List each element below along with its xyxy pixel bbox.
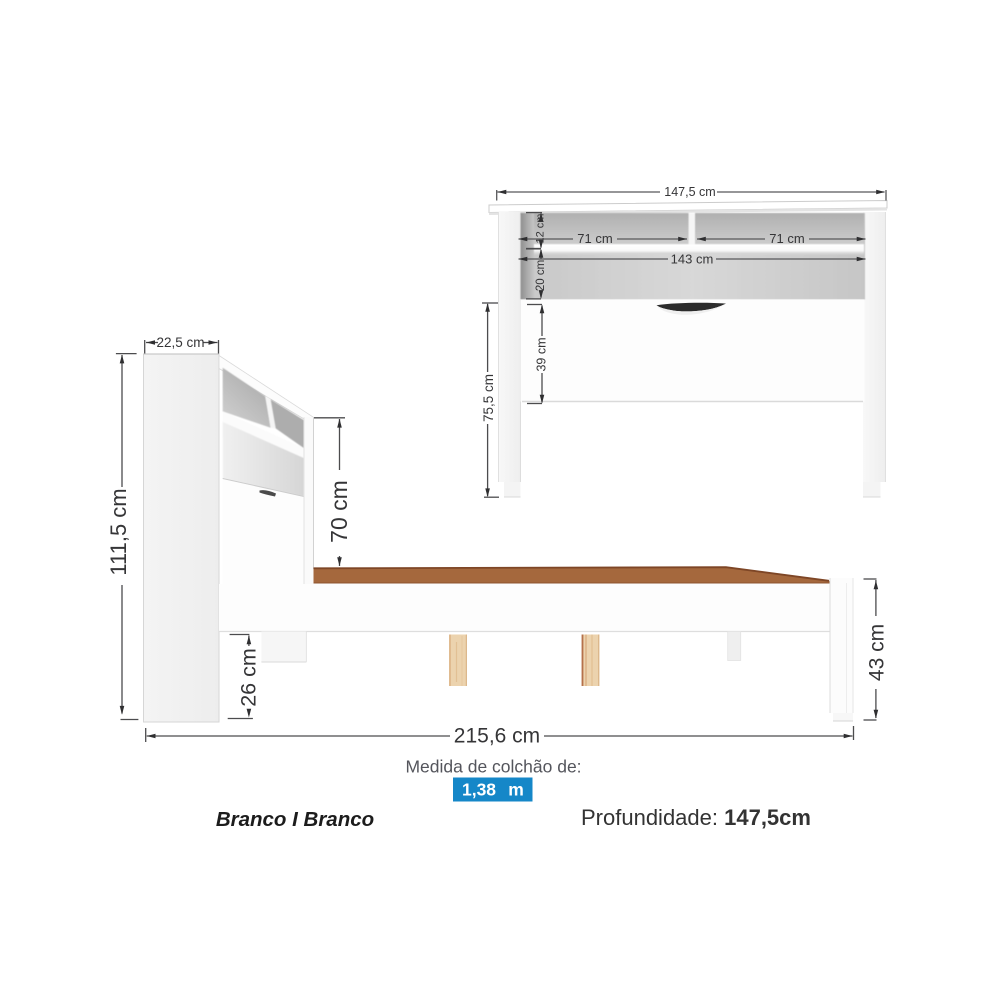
svg-text:1,38: 1,38 [462, 780, 496, 800]
svg-text:m: m [508, 780, 524, 800]
svg-text:43 cm: 43 cm [866, 624, 889, 681]
svg-text:215,6 cm: 215,6 cm [454, 725, 540, 748]
svg-text:71 cm: 71 cm [577, 231, 612, 246]
svg-text:71 cm: 71 cm [769, 231, 804, 246]
svg-text:147,5 cm: 147,5 cm [664, 185, 715, 199]
svg-text:143 cm: 143 cm [671, 252, 714, 267]
svg-text:12 cm: 12 cm [535, 214, 547, 244]
svg-text:20 cm: 20 cm [535, 260, 547, 291]
svg-text:70 cm: 70 cm [326, 480, 352, 543]
svg-text:22,5 cm: 22,5 cm [156, 335, 204, 350]
svg-text:75,5 cm: 75,5 cm [481, 374, 496, 422]
svg-text:26 cm: 26 cm [237, 648, 261, 707]
svg-text:Branco I Branco: Branco I Branco [216, 808, 374, 831]
svg-text:39 cm: 39 cm [535, 337, 549, 371]
svg-text:Profundidade: 147,5cm: Profundidade: 147,5cm [581, 805, 811, 830]
svg-text:Medida de colchão de:: Medida de colchão de: [405, 757, 581, 777]
svg-text:111,5 cm: 111,5 cm [106, 488, 131, 575]
